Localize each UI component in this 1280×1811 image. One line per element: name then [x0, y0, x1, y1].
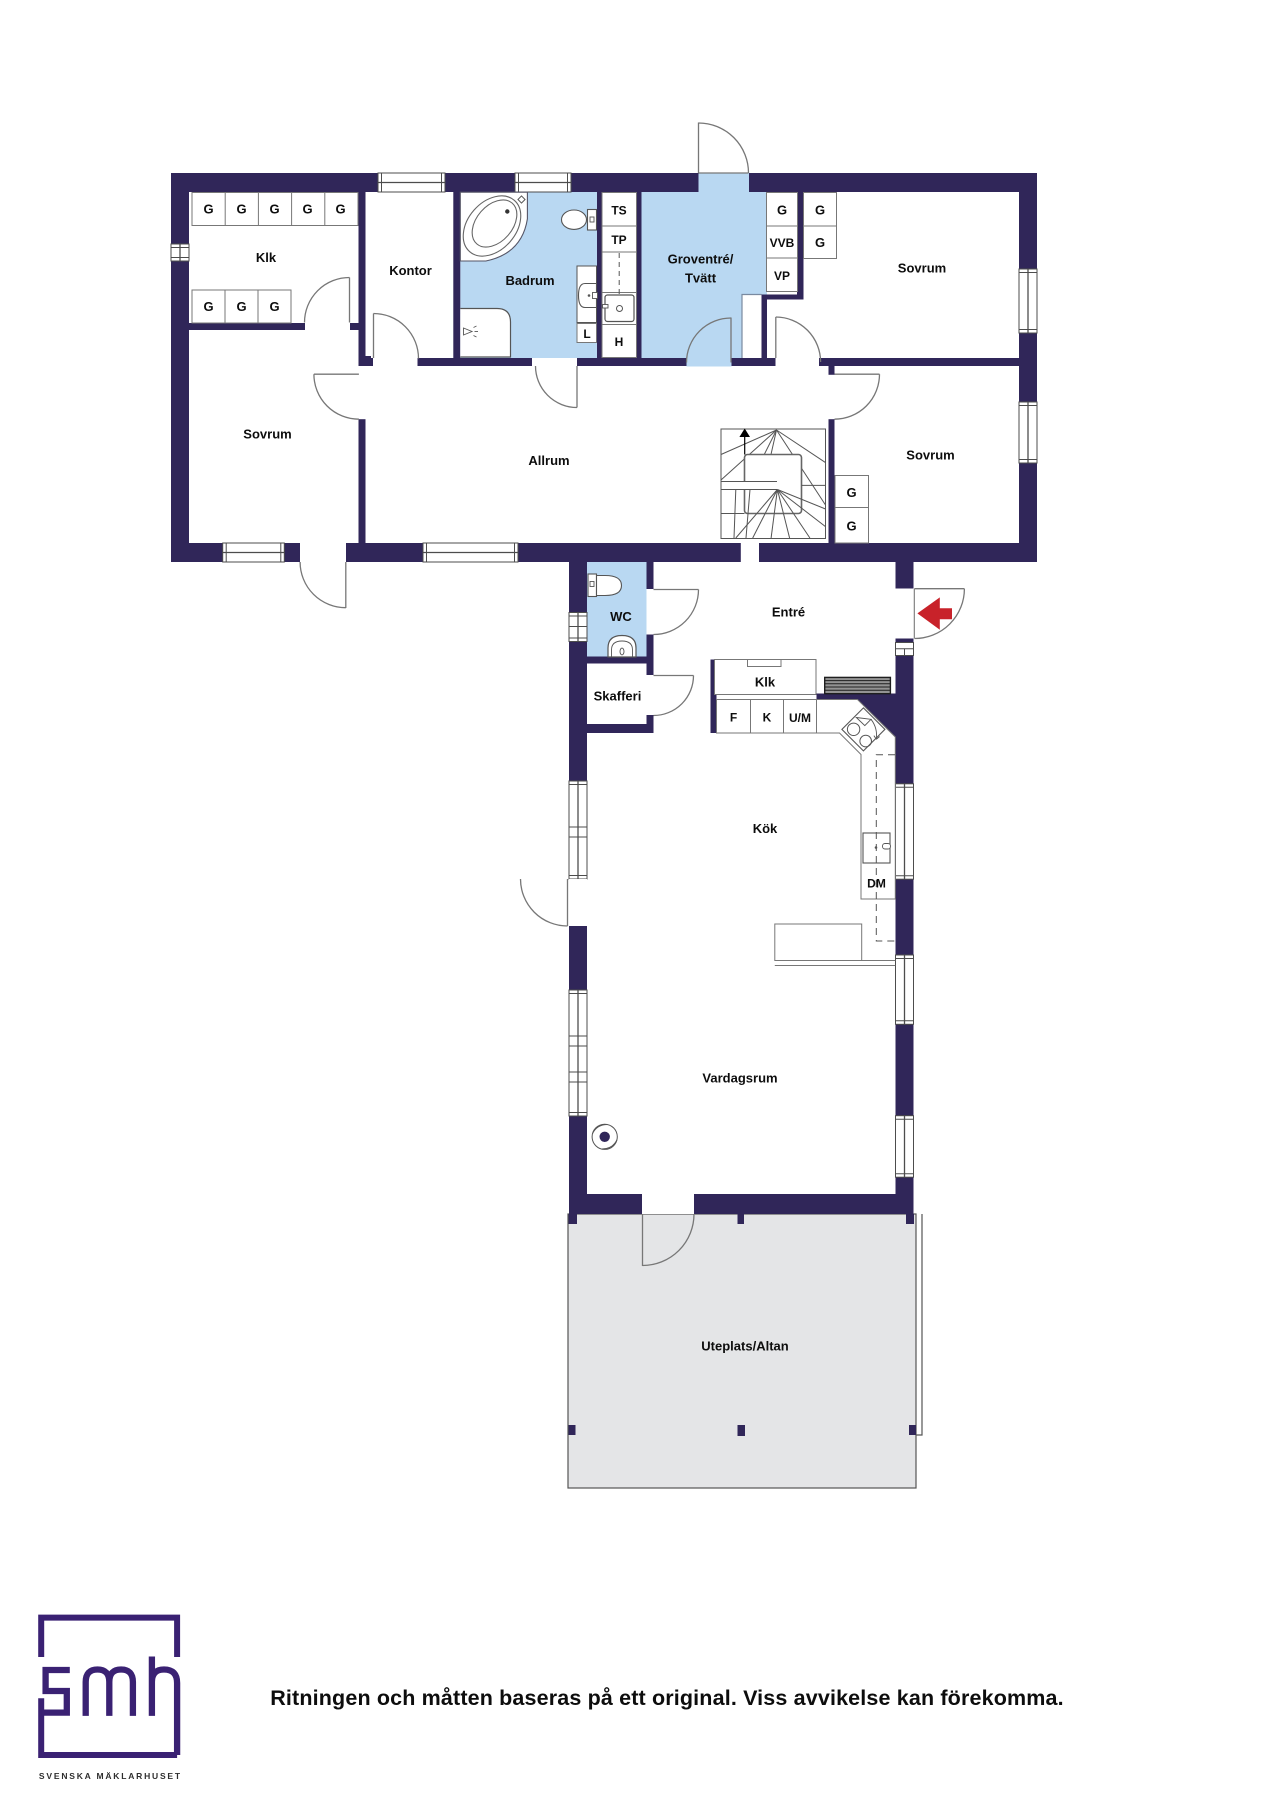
svg-text:G: G — [203, 299, 213, 314]
svg-text:H: H — [615, 335, 624, 349]
svg-text:Ritningen och måtten baseras p: Ritningen och måtten baseras på ett orig… — [270, 1686, 1064, 1710]
svg-text:G: G — [236, 299, 246, 314]
svg-text:G: G — [302, 202, 312, 217]
svg-text:G: G — [815, 235, 825, 250]
svg-text:Sovrum: Sovrum — [243, 427, 291, 442]
svg-text:G: G — [335, 202, 345, 217]
svg-text:G: G — [846, 485, 856, 500]
svg-text:SVENSKA MÄKLARHUSET: SVENSKA MÄKLARHUSET — [39, 1771, 182, 1781]
svg-text:Entré: Entré — [772, 605, 805, 620]
svg-text:TS: TS — [611, 204, 626, 218]
svg-text:U/M: U/M — [789, 711, 811, 725]
svg-text:Tvätt: Tvätt — [685, 271, 717, 286]
svg-text:Badrum: Badrum — [505, 273, 554, 288]
svg-text:Groventré/: Groventré/ — [668, 252, 734, 267]
svg-text:G: G — [269, 299, 279, 314]
svg-text:L: L — [583, 327, 590, 341]
svg-text:G: G — [815, 203, 825, 218]
svg-text:Sovrum: Sovrum — [898, 261, 946, 276]
svg-text:K: K — [763, 711, 772, 725]
svg-text:Allrum: Allrum — [528, 453, 569, 468]
svg-text:G: G — [236, 202, 246, 217]
svg-text:VVB: VVB — [770, 236, 795, 250]
svg-text:G: G — [269, 202, 279, 217]
svg-text:Uteplats/Altan: Uteplats/Altan — [701, 1339, 788, 1354]
svg-text:TP: TP — [611, 233, 626, 247]
svg-text:F: F — [730, 711, 737, 725]
svg-text:G: G — [777, 203, 787, 218]
svg-text:Vardagsrum: Vardagsrum — [702, 1071, 777, 1086]
svg-text:DM: DM — [867, 877, 886, 891]
svg-text:VP: VP — [774, 269, 790, 283]
svg-text:Kontor: Kontor — [389, 263, 432, 278]
svg-text:G: G — [846, 519, 856, 534]
svg-text:Skafferi: Skafferi — [594, 689, 642, 704]
svg-text:Kök: Kök — [753, 821, 778, 836]
svg-text:G: G — [203, 202, 213, 217]
svg-text:WC: WC — [610, 609, 632, 624]
svg-text:Klk: Klk — [755, 675, 776, 690]
svg-text:Sovrum: Sovrum — [906, 448, 954, 463]
svg-text:Klk: Klk — [256, 250, 277, 265]
